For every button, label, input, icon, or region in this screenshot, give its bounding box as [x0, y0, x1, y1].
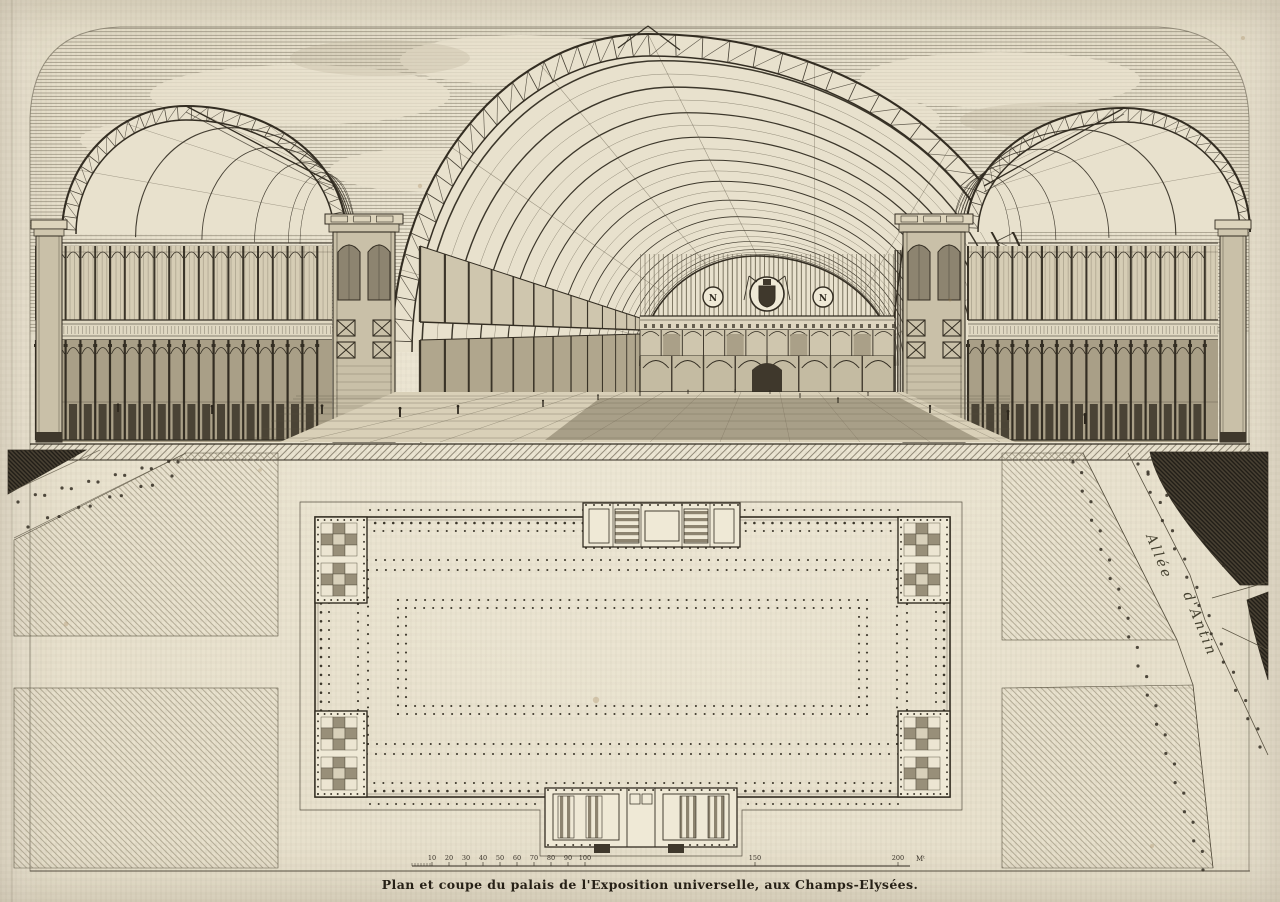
- scale-tick-label: 40: [479, 854, 487, 862]
- left-end-pier: [31, 220, 67, 442]
- right-end-pier: [1215, 220, 1251, 442]
- engraving-page: 102030405060708090100150200 Mᵗ Allée d'A…: [0, 0, 1280, 902]
- scale-tick-label: 150: [749, 854, 761, 862]
- medallion-monogram-right: N: [819, 294, 827, 304]
- exposition-plate: 102030405060708090100150200 Mᵗ Allée d'A…: [0, 0, 1280, 902]
- scale-tick-label: 70: [530, 854, 538, 862]
- scale-unit-label: Mᵗ: [916, 855, 925, 863]
- scale-tick-label: 200: [892, 854, 904, 862]
- end-wall: [640, 254, 895, 395]
- scale-tick-label: 20: [445, 854, 453, 862]
- engraving-rendering: [8, 0, 1268, 902]
- street-label-line2: d'Antin: [1179, 590, 1220, 660]
- right-gallery: [966, 243, 1218, 442]
- scale-tick-label: 100: [579, 854, 591, 862]
- scale-tick-label: 30: [462, 854, 470, 862]
- plate-caption: Plan et coupe du palais de l'Exposition …: [382, 877, 918, 892]
- street-label-line1: Allée: [1142, 530, 1176, 582]
- scale-tick-label: 90: [564, 854, 572, 862]
- scale-tick-label: 80: [547, 854, 555, 862]
- scale-tick-label: 50: [496, 854, 504, 862]
- scale-tick-label: 60: [513, 854, 521, 862]
- left-gallery: [34, 243, 332, 442]
- medallion-monogram-left: N: [709, 294, 717, 304]
- scale-tick-label: 10: [428, 854, 436, 862]
